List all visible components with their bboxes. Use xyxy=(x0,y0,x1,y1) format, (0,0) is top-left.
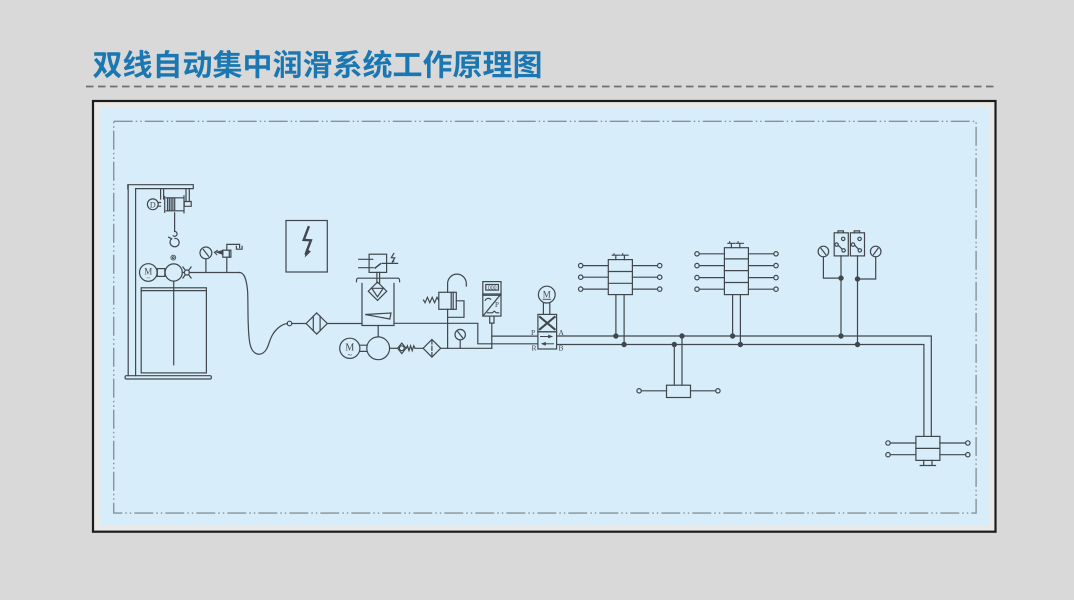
svg-text:~: ~ xyxy=(147,275,151,282)
svg-text:D: D xyxy=(150,200,156,209)
svg-text:M: M xyxy=(543,289,551,299)
svg-text:~: ~ xyxy=(348,350,353,359)
svg-text:000: 000 xyxy=(488,286,497,292)
svg-text:R: R xyxy=(532,344,537,353)
svg-text:P: P xyxy=(531,328,535,337)
svg-text:P: P xyxy=(495,301,499,309)
